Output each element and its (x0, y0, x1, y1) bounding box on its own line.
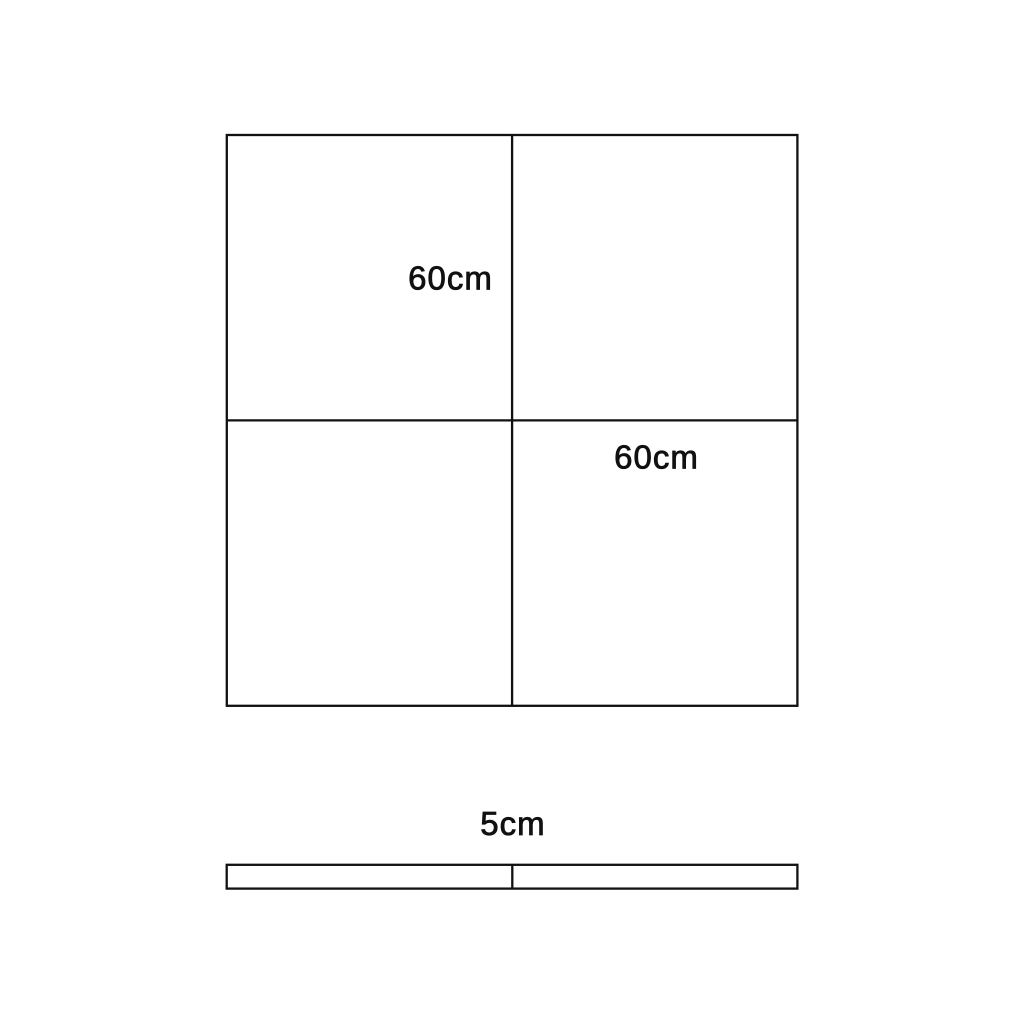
svg-text:60cm: 60cm (408, 260, 493, 297)
svg-text:60cm: 60cm (614, 438, 699, 475)
svg-text:5cm: 5cm (480, 805, 545, 842)
